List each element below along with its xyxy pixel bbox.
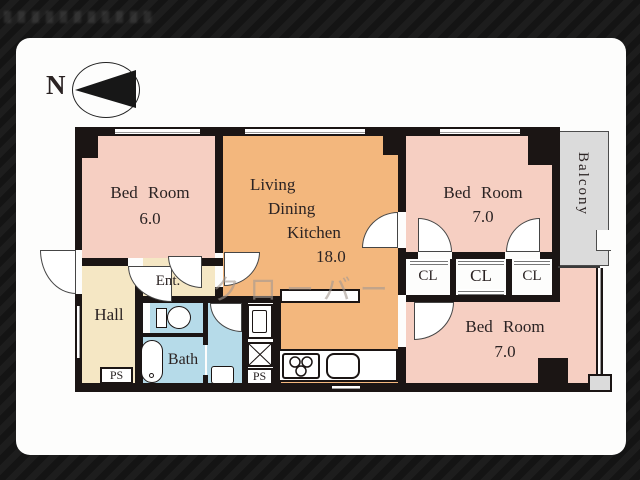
window: [440, 127, 520, 136]
bedroom-top-right-size: 7.0: [425, 208, 541, 225]
entrance-label: Ent.: [146, 274, 190, 289]
balcony-label: Balcony: [574, 152, 591, 252]
hall-label: Hall: [82, 306, 136, 323]
bedroom-top-left-name: Bed Room: [95, 184, 205, 201]
closet-rail: [514, 259, 550, 265]
center-watermark: クローバー: [212, 268, 397, 308]
toilet-bowl-icon: [167, 306, 191, 329]
wall: [75, 294, 82, 306]
closet-label-3: CL: [512, 269, 552, 284]
duct-cross-icon: [247, 342, 273, 367]
wall-block: [538, 358, 568, 383]
bedroom-top-left-size: 6.0: [95, 210, 205, 227]
window: [332, 384, 360, 391]
window: [245, 127, 365, 136]
wall: [540, 252, 552, 259]
bedroom-top-right-name: Bed Room: [425, 184, 541, 201]
toilet-icon: [156, 308, 167, 328]
stove-burners-icon: [282, 353, 320, 379]
door-opening: [75, 250, 82, 294]
cabinet-inner-icon: [252, 310, 267, 333]
window: [596, 268, 603, 383]
wall: [203, 375, 208, 383]
closet-rail: [410, 259, 448, 265]
balcony-step: [596, 230, 611, 251]
wall: [406, 252, 418, 259]
wall: [398, 248, 406, 295]
wall: [200, 127, 245, 136]
meter-box: [588, 374, 612, 392]
wall-notch: [383, 136, 406, 155]
window: [75, 306, 82, 358]
bedroom-bottom-right-name: Bed Room: [445, 318, 565, 335]
balcony-divider-line: [558, 266, 600, 268]
pipe-space-center-label: PS: [253, 369, 266, 384]
compass-north-label: N: [46, 72, 66, 99]
ldk-label-living: Living: [250, 176, 295, 193]
closet-label-1: CL: [406, 269, 450, 284]
pipe-space-left-label: PS: [110, 368, 123, 383]
room-hall: [82, 266, 135, 383]
sink-icon: [326, 353, 360, 379]
bathtub-drain-icon: [149, 373, 154, 378]
wall: [398, 347, 406, 392]
wall: [406, 295, 552, 302]
top-watermark: [4, 11, 154, 23]
wall: [452, 252, 505, 259]
bath-label: Bath: [160, 352, 206, 368]
wall: [552, 127, 560, 302]
closet-rail: [458, 259, 504, 265]
pipe-space-left: PS: [100, 367, 133, 384]
washing-machine-icon: [211, 366, 234, 384]
north-arrow-icon: [72, 62, 138, 116]
floor-plan-image: N: [0, 0, 640, 480]
wall: [365, 127, 440, 136]
closet-label-2: CL: [456, 267, 506, 284]
ldk-label-size: 18.0: [316, 248, 346, 265]
ldk-label-kitchen: Kitchen: [287, 224, 341, 241]
wall: [215, 136, 223, 253]
closet-rail: [458, 289, 504, 295]
wall: [137, 333, 205, 337]
wall: [203, 302, 208, 345]
room-bedroom-bottom-right-ext: [560, 268, 598, 302]
window: [115, 127, 200, 136]
ldk-label-dining: Dining: [268, 200, 315, 217]
pipe-space-center: PS: [246, 368, 273, 385]
wall-notch: [75, 127, 98, 158]
bedroom-bottom-right-size: 7.0: [445, 343, 565, 360]
wall: [82, 258, 128, 266]
